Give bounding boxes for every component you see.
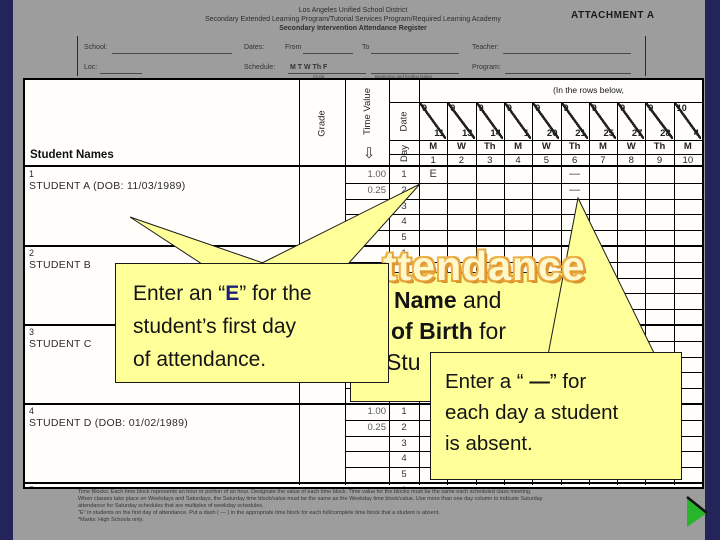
to-label: To xyxy=(362,44,369,51)
date-cell: 104 xyxy=(675,103,701,139)
date-day: 1 xyxy=(524,128,529,139)
date-cell: 914 xyxy=(477,103,503,139)
date-day: 27 xyxy=(632,128,643,139)
form-title-line1: Los Angeles Unified School District xyxy=(103,6,603,15)
date-day: 28 xyxy=(660,128,671,139)
attendance-mark: — xyxy=(561,168,589,180)
time-value: 0.25 xyxy=(345,422,389,433)
date-day: 21 xyxy=(575,128,586,139)
to-line xyxy=(371,52,459,54)
time-block-number: 5 xyxy=(389,469,419,480)
attachment-label: ATTACHMENT A xyxy=(571,10,655,21)
day-letter-cell: M xyxy=(589,141,617,152)
callout-first-day: Enter an “E” for the student’s first day… xyxy=(115,263,389,383)
day-letter-cell: Th xyxy=(645,141,673,152)
student-row-number: 2 xyxy=(29,248,34,258)
grade-column-header: Grade xyxy=(299,80,345,166)
form-divider-right xyxy=(645,36,646,76)
time-value: 1.00 xyxy=(345,406,389,417)
date-cell: 927 xyxy=(618,103,644,139)
attendance-mark: E xyxy=(419,168,447,180)
grid-line xyxy=(345,230,702,231)
schedule-label: Schedule: xyxy=(244,64,275,71)
footer-note-line: Time Blocks: Each time block represents … xyxy=(78,489,658,496)
footer-note-line: "E" in students on the first day of atte… xyxy=(78,510,658,517)
date-month: 9 xyxy=(648,103,653,113)
date-day: 13 xyxy=(462,128,473,139)
footer-notes: Time Blocks: Each time block represents … xyxy=(78,489,658,524)
callout-absent-line3: is absent. xyxy=(445,428,681,459)
teacher-line xyxy=(503,52,631,54)
dates-label: Dates: xyxy=(244,44,264,51)
date-day: 25 xyxy=(604,128,615,139)
student-row-number: 1 xyxy=(29,169,34,179)
loc-label: Loc: xyxy=(84,64,97,71)
date-month: 9 xyxy=(450,103,455,113)
time-block-number: 5 xyxy=(389,232,419,243)
date-month: 9 xyxy=(507,103,512,113)
day-letter-cell: M xyxy=(419,141,447,152)
time-block-number: 4 xyxy=(389,216,419,227)
date-column-header: Date xyxy=(389,102,419,140)
student-name: STUDENT D (DOB: 01/02/1989) xyxy=(29,417,188,429)
date-cell: 920 xyxy=(533,103,559,139)
date-cell: 911 xyxy=(420,103,446,139)
date-day: 14 xyxy=(490,128,501,139)
date-month: 9 xyxy=(479,103,484,113)
time-value: 0.25 xyxy=(345,185,389,196)
form-title-line2: Secondary Extended Learning Program/Tuto… xyxy=(103,15,603,24)
callout-absent-line1: Enter a “ —” for xyxy=(445,366,681,397)
next-slide-arrow[interactable] xyxy=(683,492,711,530)
date-cell: 913 xyxy=(448,103,474,139)
time-block-number: 1 xyxy=(389,169,419,180)
grid-line xyxy=(345,199,702,200)
day-number-cell: 5 xyxy=(532,155,560,166)
day-letter-cell: Th xyxy=(561,141,589,152)
student-names-header: Student Names xyxy=(30,149,114,161)
student-row-number: 3 xyxy=(29,327,34,337)
callout-first-day-line1: Enter an “E” for the xyxy=(133,277,388,310)
student-row-separator xyxy=(25,245,702,247)
day-number-cell: 9 xyxy=(645,155,673,166)
program-line xyxy=(505,72,631,74)
student-name: STUDENT A (DOB: 11/03/1989) xyxy=(29,180,186,192)
time-value-column-header: Time Value xyxy=(345,80,389,142)
date-month: 9 xyxy=(620,103,625,113)
from-line xyxy=(303,52,353,54)
slide: Los Angeles Unified School District Seco… xyxy=(0,0,720,540)
date-month: 9 xyxy=(535,103,540,113)
time-block-number: 1 xyxy=(389,406,419,417)
student-row-separator xyxy=(25,482,702,484)
day-number-cell: 4 xyxy=(504,155,532,166)
day-letter-cell: Th xyxy=(476,141,504,152)
day-number-cell: 6 xyxy=(561,155,589,166)
grid-line xyxy=(345,214,702,215)
date-month: 9 xyxy=(422,103,427,113)
form-divider-left xyxy=(77,36,78,76)
weekday-letters: M T W Th F xyxy=(290,64,327,71)
day-number-cell: 3 xyxy=(476,155,504,166)
attendance-mark: — xyxy=(561,184,589,196)
date-month: 10 xyxy=(677,103,687,113)
time-value: 1.00 xyxy=(345,169,389,180)
form-title: Los Angeles Unified School District Seco… xyxy=(103,6,603,33)
day-letter-cell: M xyxy=(504,141,532,152)
day-letter-cell: W xyxy=(532,141,560,152)
attendance-wordart: ttendance xyxy=(383,243,586,290)
time-block-number: 3 xyxy=(389,438,419,449)
time-block-number: 3 xyxy=(389,201,419,212)
form-title-line3: Secondary Intervention Attendance Regist… xyxy=(103,24,603,33)
callout-name-dob-line2: of Birth for xyxy=(391,318,506,345)
callout-absent-line2: each day a student xyxy=(445,397,681,428)
callout-first-day-line2: student’s first day xyxy=(133,310,388,343)
callout-name-dob-line3: Stu xyxy=(386,349,421,376)
down-arrow-icon: ⇩ xyxy=(349,144,389,162)
callout-absent: Enter a “ —” for each day a student is a… xyxy=(430,352,682,480)
student-name: STUDENT B xyxy=(29,259,91,271)
student-row-number: 5 xyxy=(29,485,34,489)
grid-line xyxy=(345,183,702,184)
day-column-header: Day xyxy=(389,139,419,167)
day-number-cell: 2 xyxy=(447,155,475,166)
rows-below-note: (In the rows below, xyxy=(553,85,624,95)
date-cell: 925 xyxy=(590,103,616,139)
footer-note-line: When classes take place on Weekdays and … xyxy=(78,496,658,503)
school-label: School: xyxy=(84,44,107,51)
program-label: Program: xyxy=(472,64,501,71)
school-line xyxy=(112,52,232,54)
date-month: 9 xyxy=(592,103,597,113)
student-row-number: 4 xyxy=(29,406,34,416)
day-number-cell: 1 xyxy=(419,155,447,166)
date-day: 20 xyxy=(547,128,558,139)
day-letter-cell: M xyxy=(674,141,702,152)
day-letter-cell: W xyxy=(617,141,645,152)
student-name: STUDENT C xyxy=(29,338,92,350)
footer-note-line: attendance for Saturday schedules that a… xyxy=(78,503,658,510)
day-number-cell: 10 xyxy=(674,155,702,166)
date-day: 11 xyxy=(434,128,444,139)
date-cell: 91 xyxy=(505,103,531,139)
day-letter-cell: W xyxy=(447,141,475,152)
time-block-number: 2 xyxy=(389,185,419,196)
date-cell: 921 xyxy=(562,103,588,139)
date-month: 9 xyxy=(564,103,569,113)
from-label: From xyxy=(285,44,301,51)
weekday-line xyxy=(288,72,366,74)
day-number-cell: 7 xyxy=(589,155,617,166)
date-day: 4 xyxy=(694,128,699,139)
loc-line xyxy=(100,72,142,74)
date-cell: 928 xyxy=(646,103,672,139)
callout-name-dob-line1: Name and xyxy=(394,287,501,314)
day-number-cell: 8 xyxy=(617,155,645,166)
footer-note-line: *Marks: High Schools only. xyxy=(78,517,658,524)
time-block-number: 2 xyxy=(389,422,419,433)
time-block-number: 4 xyxy=(389,453,419,464)
callout-first-day-line3: of attendance. xyxy=(133,343,388,376)
teacher-label: Teacher: xyxy=(472,44,499,51)
